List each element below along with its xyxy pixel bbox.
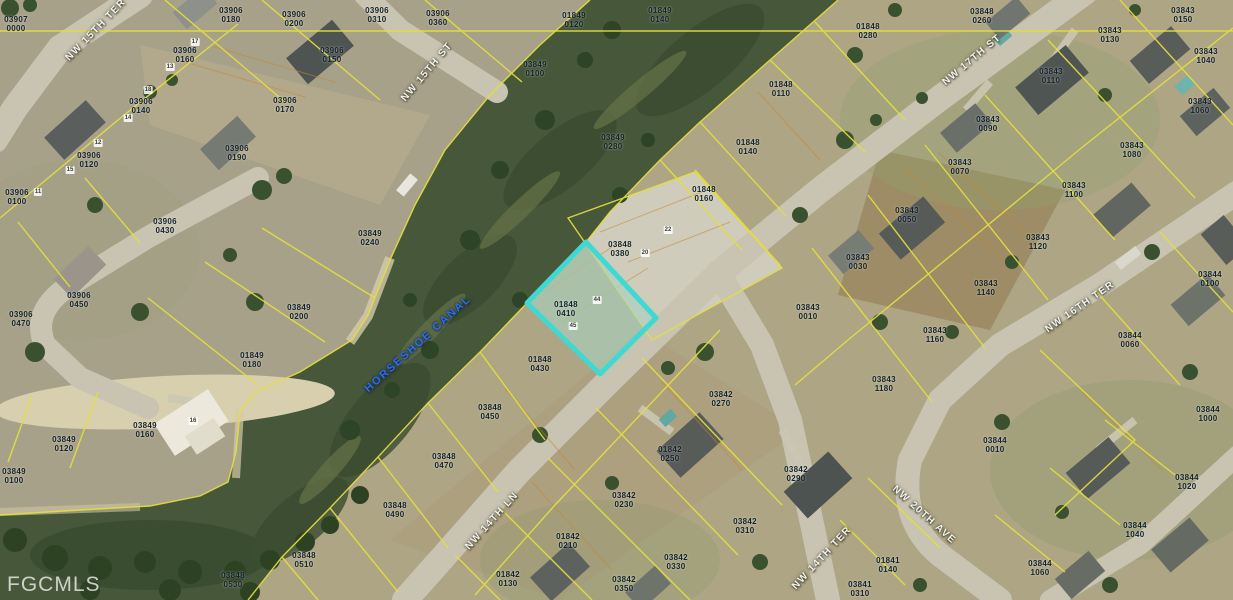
parcel-label: 039060430 [153,217,177,235]
parcel-label: 038490100 [2,467,26,485]
parcel-label: 038441060 [1028,559,1052,577]
parcel-label: 038441020 [1175,473,1199,491]
parcel-label: 039060140 [129,97,153,115]
map-label-layer: 0390700000390601800390602000390603100390… [0,0,1233,600]
parcel-label: 039060160 [173,46,197,64]
lot-number-marker: 22 [664,226,673,234]
parcel-label: 038430050 [895,206,919,224]
parcel-label: 018480430 [528,355,552,373]
parcel-label: 039060470 [9,310,33,328]
parcel-label: 038431180 [872,375,896,393]
parcel-label: 038490240 [358,229,382,247]
parcel-label: 038430130 [1098,26,1122,44]
parcel-label: 039070000 [4,15,28,33]
parcel-label: 038440010 [983,436,1007,454]
lot-number-marker: 15 [66,166,75,174]
parcel-label: 039060450 [67,291,91,309]
parcel-label: 038440060 [1118,331,1142,349]
parcel-label: 039060360 [426,9,450,27]
lot-number-marker: 44 [593,296,602,304]
parcel-label: 039060150 [320,46,344,64]
parcel-label: 018480110 [769,80,793,98]
parcel-label: 038480490 [383,501,407,519]
street-name-label: NW 14TH TER [790,524,854,592]
lot-number-marker: 14 [124,114,133,122]
parcel-label: 018420250 [658,445,682,463]
parcel-label: 038480470 [432,452,456,470]
parcel-label: 039060120 [77,151,101,169]
parcel-label: 038431080 [1120,141,1144,159]
street-name-label: NW 17TH ST [940,32,1003,88]
parcel-label: 038490120 [52,435,76,453]
lot-number-marker: 13 [166,63,175,71]
parcel-label: 038430150 [1171,6,1195,24]
parcel-label: 038441040 [1123,521,1147,539]
parcel-label: 039060100 [5,188,29,206]
parcel-label: 038440100 [1198,270,1222,288]
parcel-label: 038420290 [784,465,808,483]
parcel-label: 038431120 [1026,233,1050,251]
parcel-label: 038490280 [601,133,625,151]
parcel-label: 038430070 [948,158,972,176]
parcel-label: 038431160 [923,326,947,344]
parcel-label: 038431100 [1062,181,1086,199]
parcel-label: 018480160 [692,185,716,203]
parcel-label: 038431040 [1194,47,1218,65]
parcel-label: 038480510 [292,551,316,569]
parcel-label: 018420210 [556,532,580,550]
parcel-label: 018490180 [240,351,264,369]
lot-number-marker: 17 [191,38,200,46]
parcel-label: 038430010 [796,303,820,321]
parcel-label: 039060170 [273,96,297,114]
parcel-label: 038430030 [846,253,870,271]
canal-name-label: HORSESHOE CANAL [362,293,473,395]
parcel-label: 038410310 [848,580,872,598]
parcel-label: 038441000 [1196,405,1220,423]
lot-number-marker: 20 [641,249,650,257]
parcel-label: 038480380 [608,240,632,258]
fgcmls-watermark: FGCMLS [7,573,101,597]
parcel-label: 038420230 [612,491,636,509]
lot-number-marker: 45 [569,322,578,330]
street-name-label: NW 15TH TER [64,0,129,63]
street-name-label: NW 16TH TER [1043,279,1117,335]
lot-number-marker: 12 [94,139,103,147]
parcel-label: 018480140 [736,138,760,156]
parcel-label: 038431060 [1188,97,1212,115]
parcel-label: 038420310 [733,517,757,535]
parcel-label: 038490100 [523,60,547,78]
parcel-label: 038490160 [133,421,157,439]
parcel-label: 018410140 [876,556,900,574]
parcel-label: 039060310 [365,6,389,24]
parcel-label: 038420350 [612,575,636,593]
parcel-label: 038480530 [221,571,245,589]
parcel-label: 018490120 [562,11,586,29]
parcel-label: 038480450 [478,403,502,421]
street-name-label: NW 20TH AVE [890,484,958,547]
parcel-label: 038420270 [709,390,733,408]
parcel-label: 038490200 [287,303,311,321]
parcel-label: 018490140 [648,6,672,24]
lot-number-marker: 16 [189,417,198,425]
parcel-label: 039060180 [219,6,243,24]
parcel-label: 038430090 [976,115,1000,133]
lot-number-marker: 11 [34,188,42,196]
street-name-label: NW 14TH LN [463,490,521,552]
aerial-parcel-map: 0390700000390601800390602000390603100390… [0,0,1233,600]
parcel-label: 038420330 [664,553,688,571]
street-name-label: NW 15TH ST [399,40,455,103]
parcel-label: 018420130 [496,570,520,588]
parcel-label-highlighted: 018480410 [554,300,578,318]
parcel-label: 018480280 [856,22,880,40]
parcel-label: 038431140 [974,279,998,297]
parcel-label: 038430110 [1039,67,1063,85]
parcel-label: 038480260 [970,7,994,25]
parcel-label: 039060190 [225,144,249,162]
lot-number-marker: 18 [144,86,153,94]
parcel-label: 039060200 [282,10,306,28]
